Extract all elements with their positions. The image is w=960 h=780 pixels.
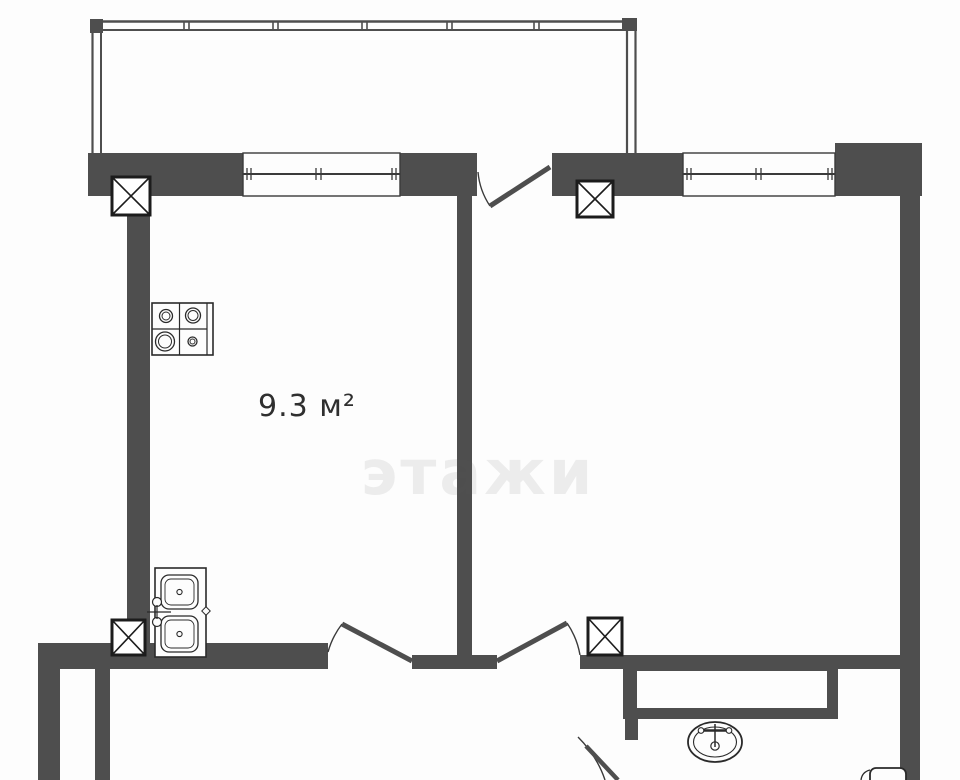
floor-plan-canvas: 9.3 м² этажи [0,0,960,780]
bathroom-door-arc [578,737,605,780]
kitchen-left-wall [127,196,150,643]
watermark: этажи [358,436,598,509]
kitchen-sink-icon [147,568,210,657]
washbasin-icon [688,722,742,762]
bathroom-door-leaf [586,746,618,780]
top-wall-right-corner [835,143,922,196]
room-area-label: 9.3 м² [258,389,356,424]
bathroom-door [578,737,618,780]
top-wall-right-of-door-segment [552,153,683,196]
shaft-column-top-left [112,177,150,215]
bottom-mid-wall [412,655,497,669]
shaft-column-bottom-left [112,620,145,655]
toilet-cistern [870,768,906,780]
top-wall-mid-segment [400,153,477,196]
floor-plan-svg [0,0,960,780]
balcony-glazing [90,18,637,153]
vent-duct-inner [637,671,827,708]
room-door-arc [567,623,580,655]
balcony-corner-post-right [622,18,637,31]
stove-icon [152,303,213,355]
kitchen-door [328,624,412,661]
balcony-corner-post-left [90,19,103,33]
vent-duct [623,655,838,719]
room-door [497,623,580,661]
shaft-column-top-middle [577,181,613,217]
window-room [683,153,835,196]
shaft-column-bottom-middle [588,618,622,655]
lower-left-inner-wall [95,669,110,780]
room-divider-wall [457,196,472,655]
kitchen-door-leaf [342,624,412,661]
balcony-door [477,153,552,206]
lower-left-outer-wall [38,669,60,780]
window-kitchen [243,153,400,196]
balcony-mullion-ticks [184,23,539,30]
toilet-icon [861,768,906,780]
kitchen-door-arc [328,624,342,652]
toilet-bowl-edge [861,770,870,780]
right-outer-wall [900,196,920,780]
room-door-leaf [497,623,567,661]
